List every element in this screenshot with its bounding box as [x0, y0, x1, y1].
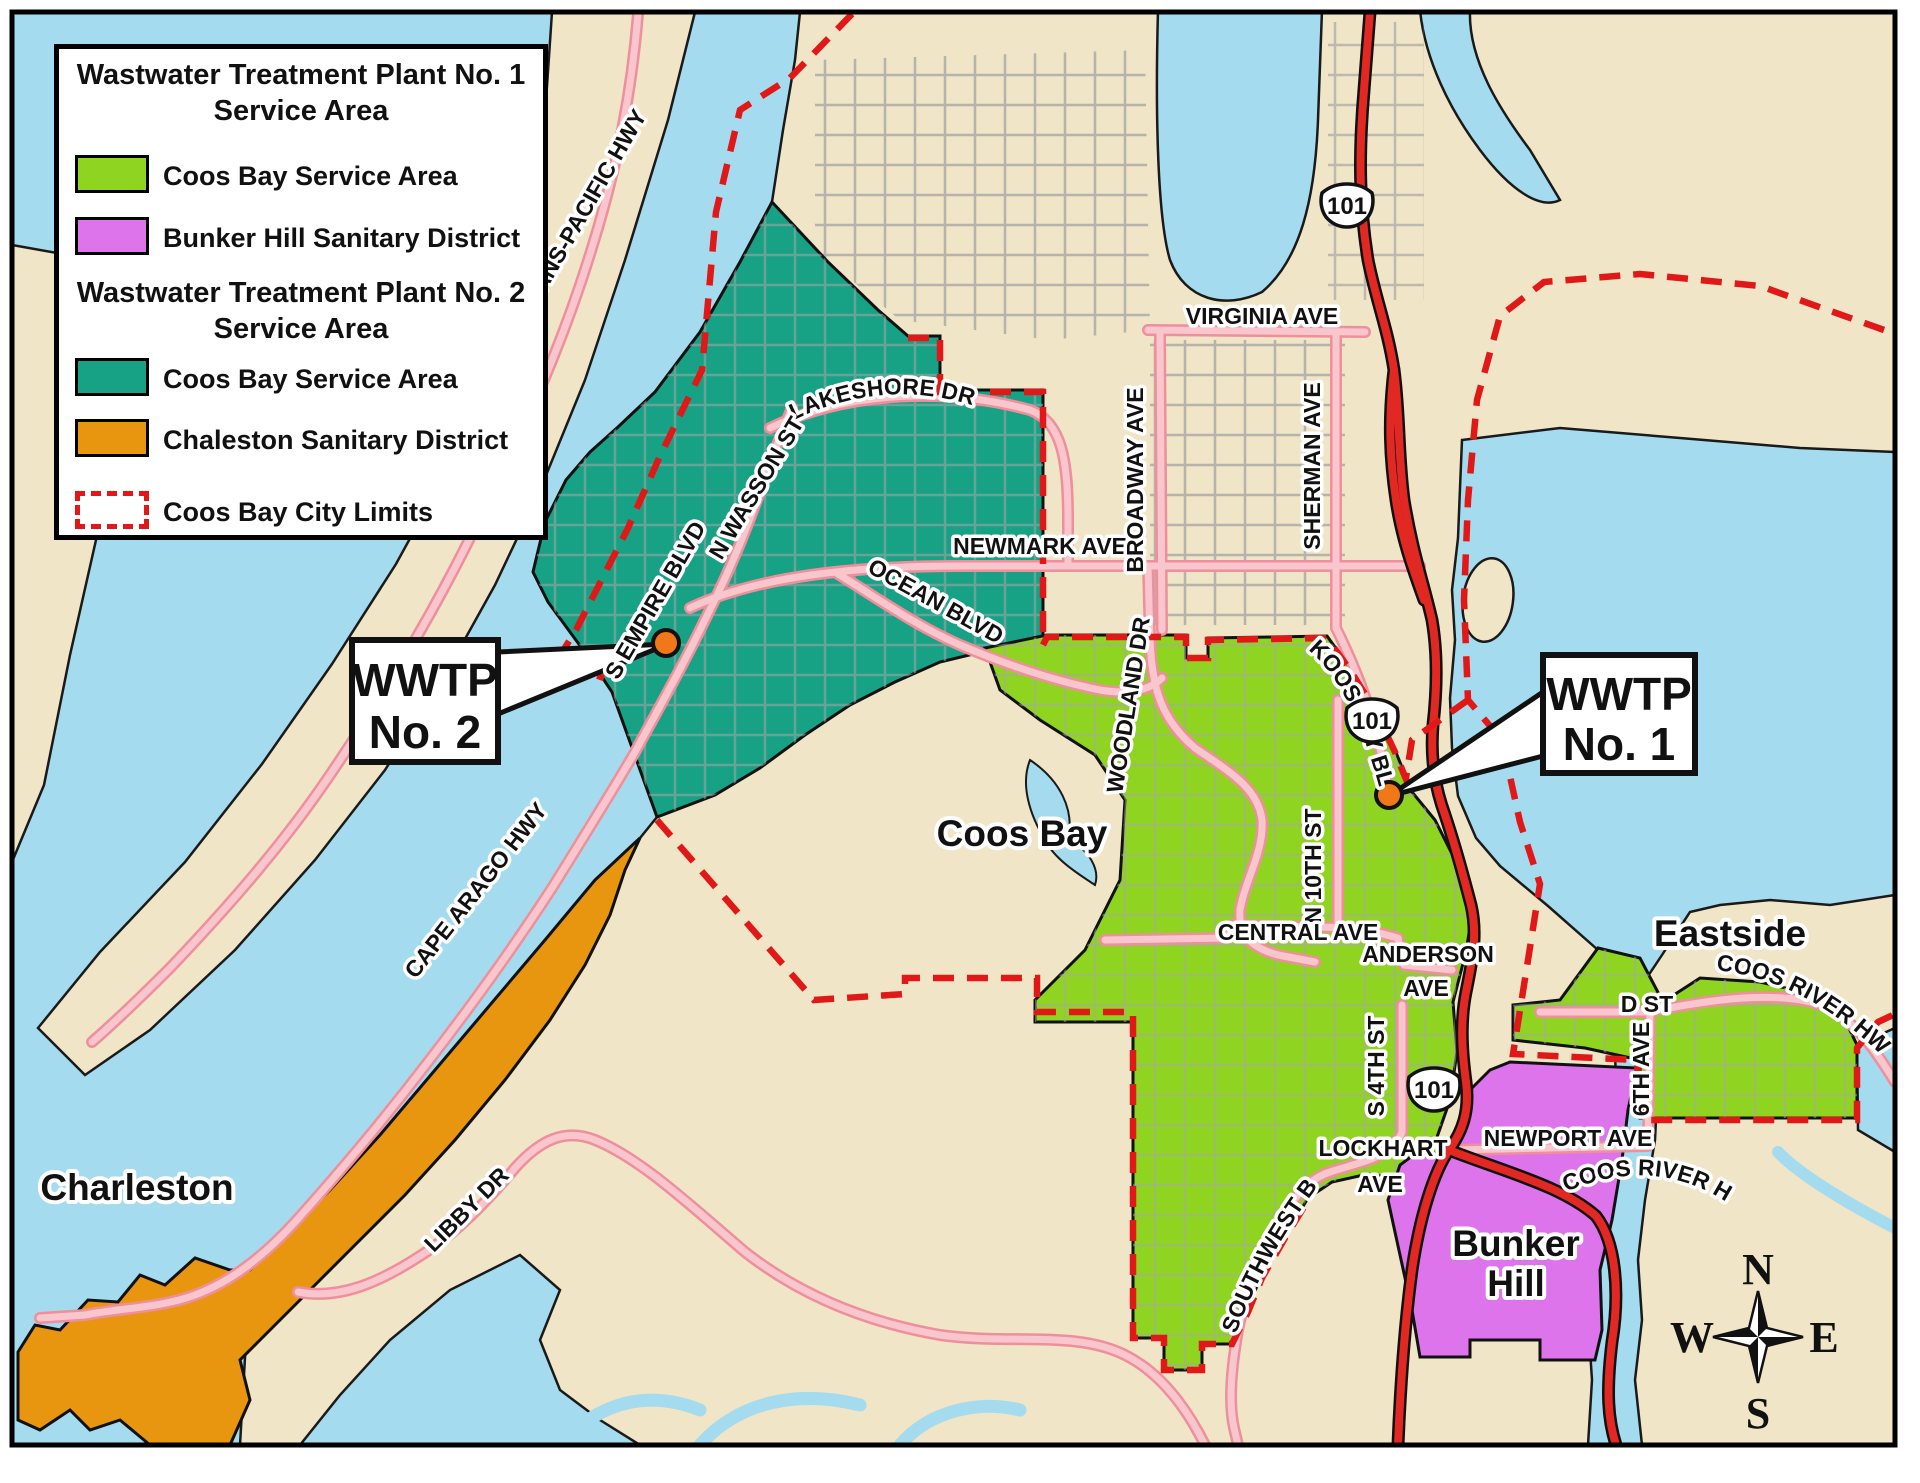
bunker-hill-swatch	[75, 217, 149, 255]
legend-item-coos-bay-2: Coos Bay Service Area	[163, 364, 458, 395]
road-label-sherman: SHERMAN AVE	[1299, 382, 1325, 549]
coos-bay-service-area-2-swatch	[75, 358, 149, 396]
highway-shield-101-mid: 101	[1346, 699, 1398, 742]
legend-title-wwtp2-line2: Service Area	[59, 313, 543, 346]
highway-shield-101-south: 101	[1408, 1068, 1460, 1111]
compass-east-label: E	[1809, 1313, 1838, 1362]
road-label-central: CENTRAL AVE	[1218, 919, 1379, 945]
road-label-n-10th: N 10TH ST	[1300, 808, 1326, 923]
compass-north-label: N	[1742, 1245, 1774, 1294]
wwtp2-callout-line1: WWTP	[352, 654, 498, 706]
chaleston-swatch	[75, 419, 149, 457]
city-limits-swatch	[75, 491, 149, 529]
legend: Wastwater Treatment Plant No. 1 Service …	[54, 44, 548, 540]
legend-title-wwtp1-line1: Wastwater Treatment Plant No. 1	[59, 59, 543, 92]
svg-text:101: 101	[1414, 1077, 1454, 1104]
wwtp1-marker	[1376, 782, 1402, 808]
place-label-bunker-hill-2: Hill	[1487, 1263, 1545, 1304]
road-label-d-st: D ST	[1621, 991, 1673, 1017]
road-label-broadway: BROADWAY AVE	[1122, 387, 1148, 572]
road-label-newmark: NEWMARK AVE	[953, 533, 1127, 559]
road-label-anderson-2: AVE	[1403, 975, 1449, 1001]
compass-west-label: W	[1670, 1313, 1714, 1362]
wwtp1-callout-line2: No. 1	[1563, 718, 1675, 770]
highway-shield-101-north: 101	[1321, 184, 1373, 227]
legend-item-city-limits: Coos Bay City Limits	[163, 497, 433, 528]
road-label-lockhart-2: AVE	[1357, 1171, 1403, 1197]
legend-item-coos-bay-1: Coos Bay Service Area	[163, 161, 458, 192]
road-label-lockhart-1: LOCKHART	[1318, 1135, 1447, 1161]
place-label-coos-bay: Coos Bay	[937, 813, 1108, 854]
road-label-6th-ave: 6TH AVE	[1628, 1022, 1654, 1117]
place-label-charleston: Charleston	[40, 1167, 233, 1208]
compass-south-label: S	[1746, 1389, 1770, 1438]
streets-top-right-island	[1328, 22, 1424, 300]
place-label-eastside: Eastside	[1654, 913, 1806, 954]
svg-text:101: 101	[1352, 708, 1392, 735]
legend-item-chaleston: Chaleston Sanitary District	[163, 425, 508, 456]
road-label-anderson-1: ANDERSON	[1362, 941, 1494, 967]
road-label-s-4th: S 4TH ST	[1363, 1016, 1389, 1117]
legend-title-wwtp1-line2: Service Area	[59, 95, 543, 128]
wwtp1-callout-line1: WWTP	[1546, 668, 1692, 720]
wwtp2-callout-line2: No. 2	[369, 706, 481, 758]
wwtp2-marker	[653, 630, 679, 656]
road-label-virginia: VIRGINIA AVE	[1186, 303, 1339, 329]
svg-text:101: 101	[1327, 193, 1367, 220]
map-page: WWTP No. 2 WWTP No. 1 TRANS-PACIFIC HWY …	[0, 0, 1920, 1483]
place-label-bunker-hill-1: Bunker	[1452, 1223, 1579, 1264]
coos-bay-service-area-1-swatch	[75, 155, 149, 193]
legend-title-wwtp2-line1: Wastwater Treatment Plant No. 2	[59, 277, 543, 310]
legend-item-bunker-hill: Bunker Hill Sanitary District	[163, 223, 520, 254]
road-label-newport: NEWPORT AVE	[1484, 1125, 1653, 1151]
